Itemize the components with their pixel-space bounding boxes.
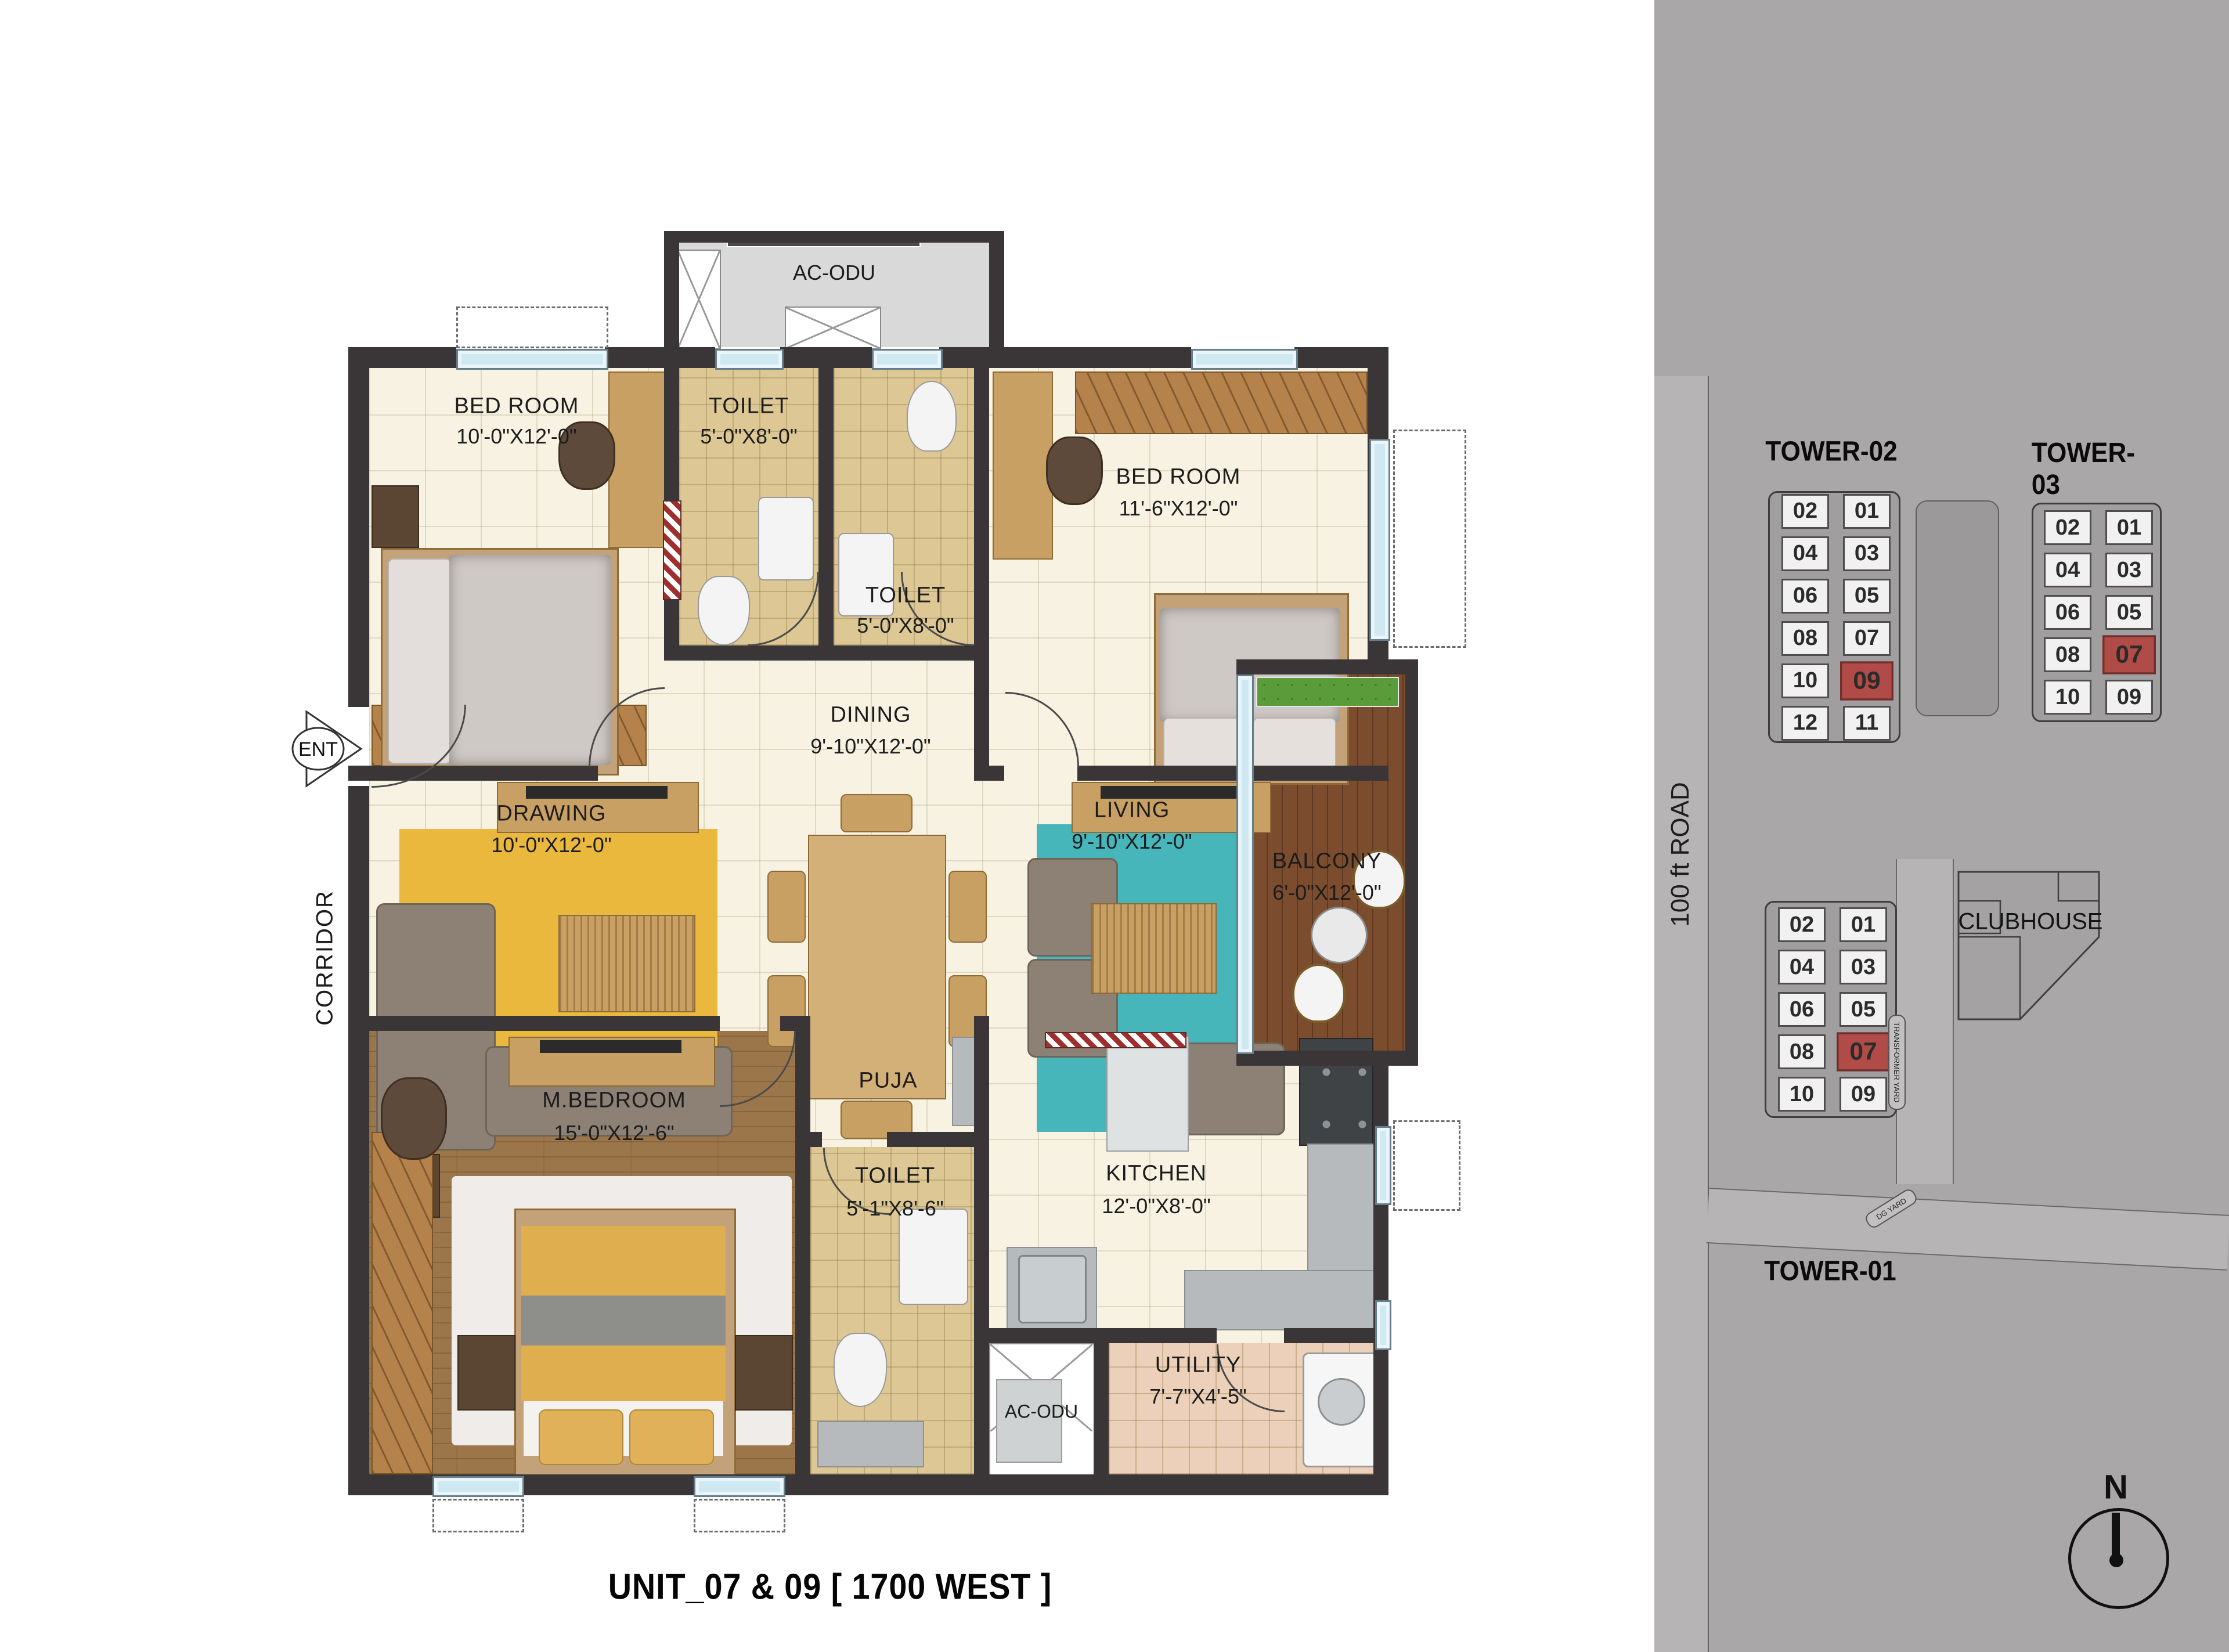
unit-chip-tower-02-12: 12: [1781, 706, 1829, 741]
unit-chip-tower-01-01: 01: [1840, 907, 1887, 942]
bedroom2-dims: 11'-6"X12'-0": [1119, 496, 1238, 521]
master-bedroom-dims: 15'-0"X12'-6": [554, 1121, 674, 1145]
unit-chip-tower-03-01: 01: [2105, 510, 2153, 545]
drawing-dims: 10'-0"X12'-0": [491, 833, 611, 857]
unit-chip-tower-01-02: 02: [1778, 907, 1826, 942]
wall-toilet1-toilet2: [818, 368, 834, 645]
wall-puja-right: [974, 1016, 989, 1147]
wall-puja-toilet3-stub: [810, 1132, 822, 1147]
wall-bed2-bottom: [1077, 766, 1388, 781]
unit-chip-tower-03-05: 05: [2105, 595, 2153, 630]
acodu-wall-right: [989, 231, 1004, 347]
unit-chip-tower-01-04: 04: [1778, 950, 1826, 984]
unit-chip-tower-03-07: 07: [2102, 635, 2156, 674]
wall-toilet2-bed2: [974, 368, 989, 645]
master-wardrobe: [371, 1132, 433, 1474]
toilet2-dims: 5'-0"X8'-0": [857, 614, 954, 638]
acodu-top-unit-icon: [677, 250, 721, 349]
wall-right-kitchen: [1373, 1051, 1388, 1495]
wall-bed2-bottom-stub: [989, 766, 1004, 781]
kitchen-fridge: [1106, 1036, 1189, 1152]
balcony-dims: 6'-0"X12'-0": [1272, 881, 1381, 905]
unit-chip-tower-02-03: 03: [1843, 536, 1891, 571]
unit-chip-tower-02-02: 02: [1781, 494, 1829, 529]
master-side-table2: [735, 1335, 793, 1411]
bedroom2-wardrobe: [1075, 371, 1368, 434]
puja-label: PUJA: [859, 1069, 917, 1094]
toilet3-wc: [834, 1333, 887, 1407]
utility-dims: 7'-7"X4'-5": [1149, 1384, 1246, 1409]
dashed-box-bedroom2-right: [1393, 430, 1466, 648]
wall-puja-toilet3: [887, 1132, 989, 1147]
wall-bed2-left-lower: [974, 645, 989, 781]
bedroom1-side-unit: [371, 485, 419, 548]
toilet1-sink: [758, 497, 814, 580]
wall-toilet3-right: [974, 1147, 989, 1495]
window-kitchen-right1: [1375, 1126, 1391, 1205]
wall-toilets-bottom: [664, 645, 989, 661]
unit-chip-tower-03-03: 03: [2105, 553, 2153, 587]
wall-master-top: [348, 1016, 720, 1031]
unit-chip-tower-01-03: 03: [1840, 950, 1887, 984]
balcony-chair2: [1292, 964, 1346, 1023]
unit-chip-tower-02-10: 10: [1781, 663, 1829, 698]
unit-chip-tower-01-09: 09: [1840, 1077, 1887, 1112]
toilet3-label: TOILET: [855, 1164, 935, 1189]
dining-dims: 9'-10"X12'-0": [810, 734, 930, 759]
balcony-wall-top: [1236, 659, 1418, 674]
wall-kitchen-utility-b: [1284, 1328, 1377, 1343]
bedroom2-bed-pillow1: [1163, 717, 1247, 773]
window-bedroom1-top: [456, 349, 608, 370]
bedroom1-dims: 10'-0"X12'-0": [456, 424, 576, 449]
tower-03-label: TOWER-03: [2032, 437, 2156, 501]
unit-chip-tower-03-06: 06: [2044, 595, 2091, 630]
bedroom1-label: BED ROOM: [455, 394, 579, 419]
balcony-label: BALCONY: [1272, 849, 1382, 874]
bedroom2-label: BED ROOM: [1116, 465, 1241, 490]
wall-top-e: [939, 347, 1191, 368]
toilet2-label: TOILET: [865, 583, 946, 608]
acodu-bottom-label: AC-ODU: [1005, 1401, 1078, 1423]
acodu-top-fan-icon: [785, 306, 881, 349]
unit-chip-tower-02-04: 04: [1781, 536, 1829, 571]
drawing-tv-screen: [526, 786, 668, 799]
clubhouse-label: CLUBHOUSE: [1959, 909, 2103, 935]
kitchen-label: KITCHEN: [1106, 1162, 1207, 1186]
site-plan: 100 ft ROAD TOWER-02 TOWER-03 TOWER-01 0…: [1654, 0, 2229, 1652]
north-needle-hub-icon: [2109, 1553, 2123, 1567]
master-bed-blanket-bottom: [521, 1346, 726, 1401]
unit-chip-tower-01-07: 07: [1837, 1032, 1890, 1071]
clubhouse-outline: [1950, 864, 2142, 1032]
dashed-box-bottom1: [432, 1499, 524, 1532]
dining-chair-right1: [948, 871, 987, 943]
unit-chip-tower-02-07: 07: [1843, 621, 1891, 656]
unit-chip-tower-02-05: 05: [1843, 579, 1891, 614]
wall-acodu2-utility: [1094, 1343, 1109, 1474]
kitchen-dims: 12'-0"X8'-0": [1102, 1194, 1210, 1218]
unit-chip-tower-03-02: 02: [2044, 510, 2091, 545]
master-bed-blanket-gray: [521, 1296, 726, 1346]
dining-table: [808, 835, 946, 1099]
living-coffee-table: [1091, 903, 1217, 994]
utility-label: UTILITY: [1155, 1353, 1241, 1378]
dashed-box-kitchen-right: [1393, 1120, 1460, 1211]
living-dims: 9'-10"X12'-0": [1072, 829, 1192, 854]
acodu-wall-top: [664, 231, 1004, 243]
kitchen-sink: [1018, 1255, 1087, 1323]
master-bed-blanket-top: [521, 1226, 726, 1296]
road-100ft: [1654, 376, 1709, 1652]
window-bedroom2-right: [1369, 439, 1390, 641]
wall-kitchen-utility-a: [989, 1328, 1217, 1343]
window-master-bottom1: [432, 1476, 524, 1497]
master-bed-pillow2: [629, 1409, 714, 1465]
window-kitchen-right2: [1375, 1300, 1391, 1350]
dashed-box-bottom2: [694, 1499, 785, 1532]
toilet3-dims: 5'-1"X8'-6": [846, 1196, 943, 1221]
toilet3-sink: [899, 1209, 968, 1305]
acodu-top-label: AC-ODU: [793, 261, 875, 285]
window-toilet1-top: [715, 349, 784, 370]
master-bedroom-label: M.BEDROOM: [542, 1088, 686, 1113]
balcony-sliding-door: [1236, 674, 1254, 1054]
drawing-coffee-table: [558, 915, 695, 1012]
wall-top-c: [679, 347, 715, 368]
wall-master-right: [795, 1016, 810, 1495]
master-bed-pillow1: [539, 1409, 623, 1465]
toilet1-wc: [698, 576, 750, 645]
unit-chip-tower-02-08: 08: [1781, 621, 1829, 656]
north-label: N: [2104, 1468, 2128, 1507]
bedroom2-desk: [993, 371, 1053, 560]
tower-01-units: 02010403060508071009: [1778, 907, 1884, 1112]
corridor-label: CORRIDOR: [312, 890, 338, 1026]
dining-label: DINING: [831, 703, 911, 728]
toilet3-vanity: [817, 1421, 924, 1467]
unit-chip-tower-03-08: 08: [2044, 637, 2091, 672]
road-label: 100 ft ROAD: [1666, 782, 1695, 926]
toilet1-dims: 5'-0"X8'-0": [700, 424, 797, 449]
bedroom1-bed-blanket: [449, 555, 611, 765]
unit-chip-tower-01-10: 10: [1778, 1077, 1826, 1112]
parking-strip: [1916, 500, 1999, 716]
page: BED ROOM 10'-0"X12'-0" TOILET 5'-0"X8'-0…: [0, 0, 2229, 1652]
wall-top-a: [348, 347, 456, 368]
floor-plan: BED ROOM 10'-0"X12'-0" TOILET 5'-0"X8'-0…: [0, 0, 1654, 1652]
unit-chip-tower-02-06: 06: [1781, 579, 1829, 614]
tower-01-block: 02010403060508071009: [1765, 901, 1897, 1118]
toilet2-wc: [907, 381, 957, 452]
unit-chip-tower-02-09: 09: [1840, 661, 1893, 700]
balcony-wall-right: [1405, 659, 1418, 1066]
plan-title: UNIT_07 & 09 [ 1700 WEST ]: [608, 1567, 1052, 1608]
unit-chip-tower-03-09: 09: [2105, 680, 2153, 715]
living-label: LIVING: [1094, 798, 1170, 823]
bedroom2-chair: [1046, 437, 1103, 505]
unit-chip-tower-01-08: 08: [1778, 1034, 1826, 1069]
drawing-label: DRAWING: [496, 802, 606, 827]
wall-master-top-stub: [780, 1016, 795, 1031]
wall-left-lower: [348, 786, 369, 1495]
living-tv-screen: [1101, 786, 1240, 799]
unit-chip-tower-03-10: 10: [2044, 680, 2091, 715]
hatch-bed1-toilet1: [663, 500, 681, 600]
unit-chip-tower-01-05: 05: [1840, 992, 1887, 1027]
unit-chip-tower-01-06: 06: [1778, 992, 1826, 1027]
hatch-living-kitchen: [1045, 1032, 1186, 1048]
dining-chair-top: [841, 794, 912, 832]
balcony-planter: [1256, 677, 1399, 707]
tower-02-label: TOWER-02: [1765, 436, 1897, 468]
tower-03-units: 02010403060508071009: [2044, 510, 2149, 715]
dining-chair-left1: [767, 871, 806, 943]
window-toilet2-top: [872, 349, 943, 370]
unit-chip-tower-03-04: 04: [2044, 553, 2091, 587]
balcony-table: [1311, 907, 1368, 964]
unit-chip-tower-02-01: 01: [1843, 494, 1891, 529]
balcony-wall-bottom: [1236, 1051, 1418, 1066]
svg-text:ENT: ENT: [298, 738, 338, 760]
tower-02-block: 020104030605080710091211: [1768, 491, 1900, 743]
wall-left-upper: [348, 347, 369, 707]
toilet1-label: TOILET: [709, 394, 789, 419]
wall-top-b: [605, 347, 679, 368]
washing-machine-drum-icon: [1318, 1378, 1365, 1426]
dashed-box-top: [456, 306, 608, 348]
bedroom2-bed-pillow2: [1253, 717, 1336, 773]
tower-03-block: 02010403060508071009: [2032, 503, 2162, 722]
transformer-yard-sign: TRANSFORMER YARD: [1888, 1015, 1906, 1110]
kitchen-counter-bottom: [1184, 1270, 1376, 1330]
master-chair: [381, 1077, 447, 1160]
acodu-wall-left: [664, 231, 679, 347]
tower-01-label: TOWER-01: [1764, 1256, 1896, 1287]
master-tv-screen: [540, 1040, 681, 1053]
entry-arrow-icon: ENT: [290, 708, 366, 789]
window-master-bottom2: [694, 1476, 785, 1497]
wall-top-d: [780, 347, 872, 368]
tower-02-units: 020104030605080710091211: [1781, 494, 1887, 741]
window-bedroom2-top: [1191, 349, 1298, 370]
unit-chip-tower-02-11: 11: [1843, 706, 1891, 741]
bedroom1-desk: [608, 371, 665, 548]
master-side-table1: [457, 1335, 515, 1411]
